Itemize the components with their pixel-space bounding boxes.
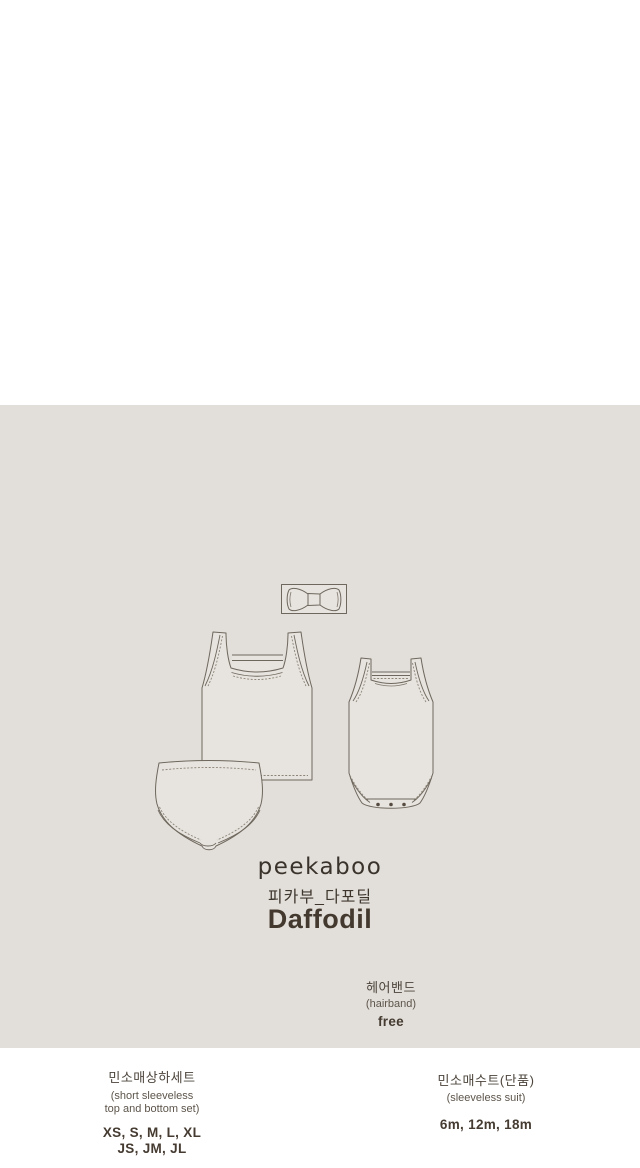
set-name-korean: 민소매상하세트 bbox=[77, 1071, 227, 1086]
product-title: Daffodil bbox=[0, 904, 640, 935]
hairband-size: free bbox=[378, 1014, 404, 1029]
bodysuit-illustration bbox=[345, 654, 437, 812]
suit-label: 민소매수트(단품) (sleeveless suit) 6m, 12m, 18m bbox=[411, 1074, 561, 1134]
hairband-illustration bbox=[280, 583, 350, 617]
set-name-english-line1: (short sleeveless bbox=[77, 1090, 227, 1103]
set-sizes-line2: JS, JM, JL bbox=[77, 1141, 227, 1157]
product-page: peekaboo 피카부_다포딜 Daffodil 헤어밴드 (hairband… bbox=[0, 0, 640, 1168]
hairband-name-korean: 헤어밴드 bbox=[330, 981, 452, 996]
set-name-english-line2: top and bottom set) bbox=[77, 1103, 227, 1116]
bloomers-illustration bbox=[154, 754, 264, 858]
set-sizes-line1: XS, S, M, L, XL bbox=[77, 1125, 227, 1141]
brand-logo: peekaboo bbox=[0, 854, 640, 880]
hairband-label: 헤어밴드 (hairband) free bbox=[330, 981, 452, 1031]
beige-panel: peekaboo 피카부_다포딜 Daffodil 헤어밴드 (hairband… bbox=[0, 405, 640, 1048]
suit-name-english: (sleeveless suit) bbox=[411, 1092, 561, 1105]
set-label: 민소매상하세트 (short sleeveless top and bottom… bbox=[77, 1071, 227, 1156]
hairband-name-english: (hairband) bbox=[330, 998, 452, 1011]
suit-sizes: 6m, 12m, 18m bbox=[440, 1117, 532, 1132]
suit-name-korean: 민소매수트(단품) bbox=[411, 1074, 561, 1089]
